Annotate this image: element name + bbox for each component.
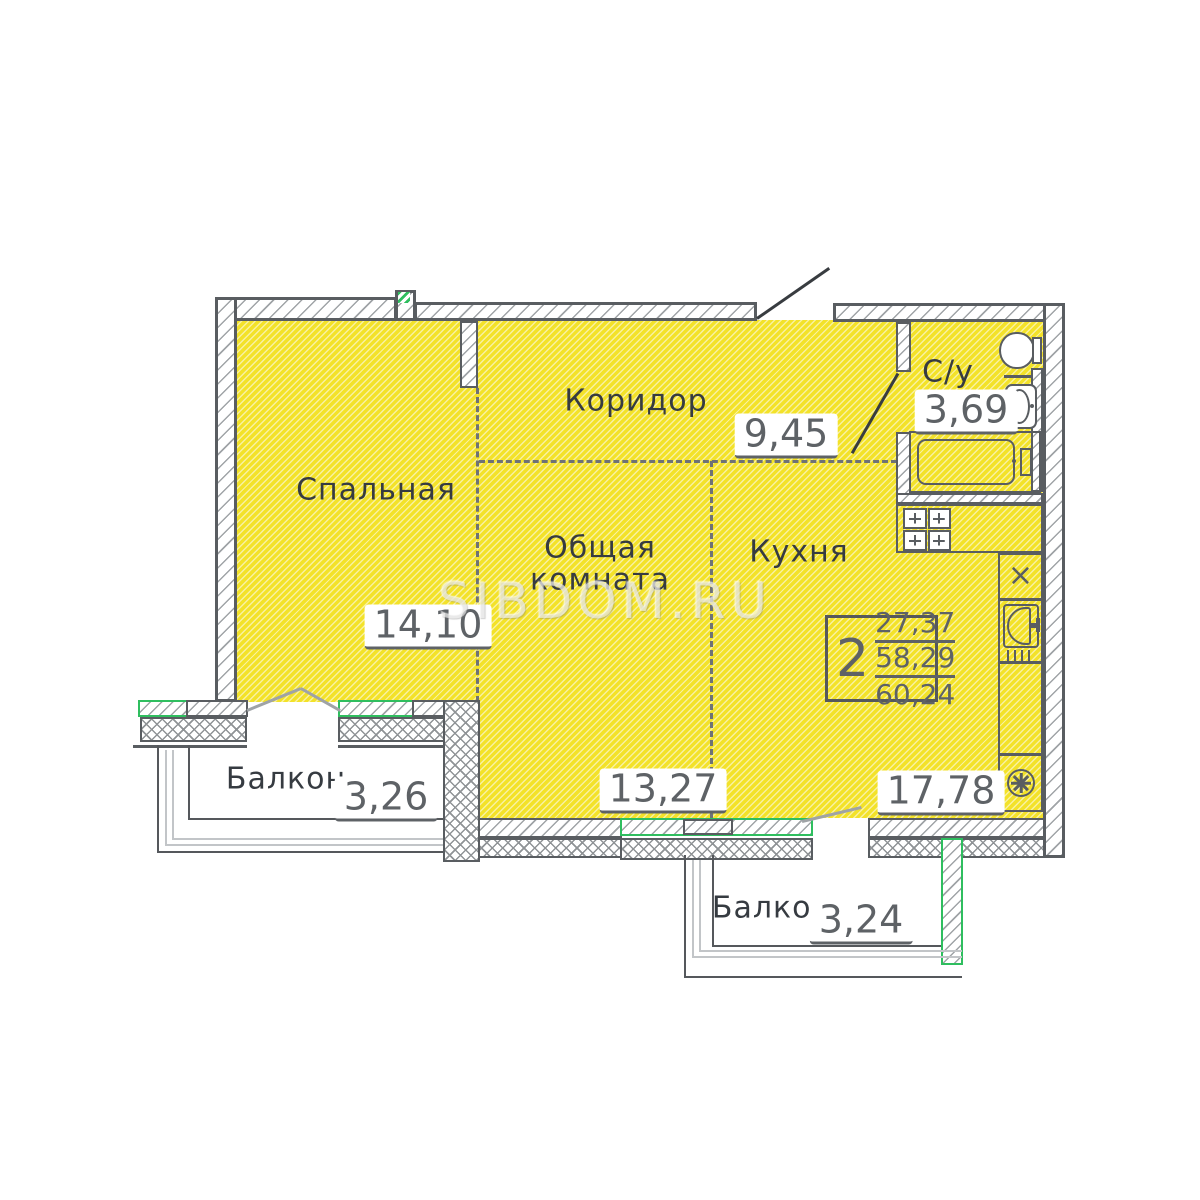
area-value-balcony-bottom: 3,24	[810, 899, 913, 944]
stove-icon	[903, 508, 951, 551]
window-frame-bedroom-mid	[186, 700, 248, 717]
room-label-living-1: Общая	[544, 531, 656, 566]
area-value-balcony-left: 3,26	[335, 776, 438, 821]
bathtub-inner	[917, 439, 1015, 485]
watermark: SIBDOM.RU	[438, 572, 772, 630]
partition-bedroom	[460, 321, 478, 388]
room-label-kitchen: Кухня	[749, 535, 848, 570]
counter-line	[998, 598, 1043, 601]
area-value-bottom: 60,24	[875, 678, 955, 709]
counter-x-mark-icon	[998, 553, 1043, 598]
window-frame-bedroom-left	[138, 700, 188, 717]
area-value-middle: 58,29	[875, 643, 955, 678]
kitchen-drainer-icon	[1007, 650, 1035, 661]
area-value-living: 13,27	[600, 768, 727, 813]
burner-icon	[928, 530, 952, 551]
bathtub-faucet-icon	[1020, 448, 1032, 476]
toilet-icon	[999, 332, 1035, 369]
toilet-divider-line	[1004, 375, 1033, 378]
wall-bathroom-bottom	[896, 493, 1043, 504]
divider-corridor	[479, 460, 897, 463]
wall-top-left	[215, 297, 397, 321]
wall-right	[1043, 303, 1065, 858]
green-mark-icon	[398, 292, 410, 303]
room-label-corridor: Коридор	[564, 384, 707, 419]
room-label-bedroom: Спальная	[296, 473, 456, 508]
area-value-top: 27,37	[875, 608, 955, 643]
toilet-tank-icon	[1032, 337, 1042, 364]
area-value-bathroom: 3,69	[915, 389, 1018, 434]
area-value-corridor: 9,45	[735, 413, 838, 458]
wall-bottom-living	[478, 818, 622, 838]
apartment-info-box: 2 27,37 58,29 60,24	[825, 615, 938, 702]
room-label-bathroom: С/у	[922, 355, 974, 390]
area-value-kitchen: 17,78	[878, 770, 1005, 815]
bathroom-sink-drain	[1030, 404, 1034, 408]
area-values-stack: 27,37 58,29 60,24	[875, 608, 955, 709]
washing-machine-icon	[1007, 769, 1035, 797]
counter-line	[998, 661, 1043, 664]
corner-wall	[443, 700, 480, 862]
divider-bedroom-living	[476, 388, 479, 702]
burner-icon	[928, 508, 952, 529]
window-sill-bedroom-left	[140, 717, 247, 742]
burner-icon	[903, 530, 927, 551]
kitchen-faucet-handle	[1036, 618, 1040, 632]
window-frame-bedroom-right	[338, 700, 414, 717]
wall-left	[215, 297, 237, 702]
rooms-count: 2	[836, 633, 869, 685]
wall-top-mid	[414, 302, 757, 321]
partition-bathroom-top	[896, 322, 911, 372]
burner-icon	[903, 508, 927, 529]
window-frame-living-mid	[683, 819, 733, 835]
floor-plan: Спальная 14,10 Коридор 9,45 Общая комнат…	[0, 0, 1200, 1200]
wall-top-right	[833, 303, 1065, 322]
sill-bottom-living	[478, 838, 622, 858]
wall-bottom-kitchen	[868, 818, 1065, 838]
counter-line	[998, 753, 1043, 756]
divider-living-kitchen	[710, 461, 713, 818]
entrance-door-line	[756, 267, 830, 320]
bathtub-drain	[1012, 459, 1016, 463]
room-label-balcony-left: Балкон	[226, 762, 346, 797]
